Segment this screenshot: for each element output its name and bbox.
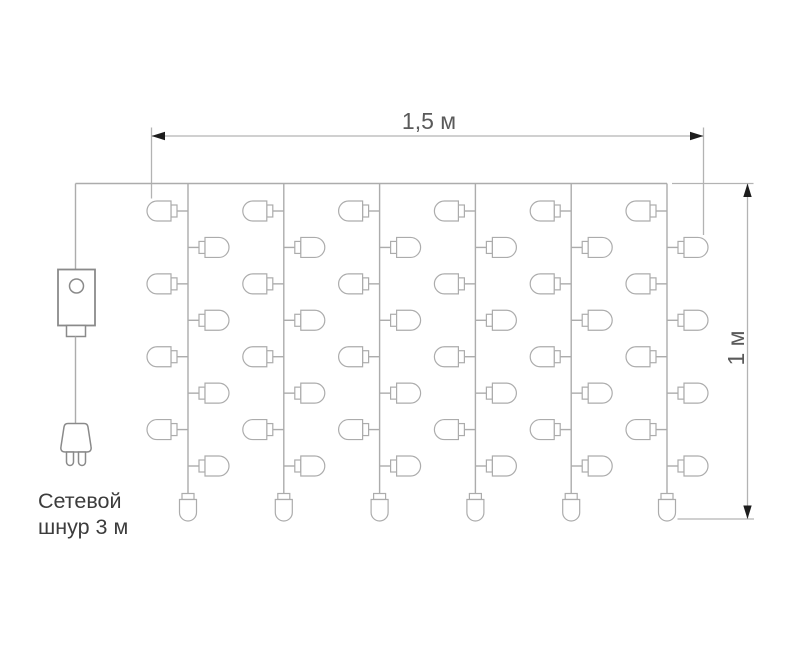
bulb-capsule — [626, 347, 650, 367]
bulb-capsule — [243, 274, 267, 294]
led-bulb-right — [571, 456, 612, 476]
bulb-socket — [363, 278, 369, 290]
led-bulb-end — [180, 494, 197, 522]
led-bulb-right — [284, 456, 325, 476]
bulb-capsule — [588, 310, 612, 330]
bulb-socket — [458, 424, 464, 436]
bulb-socket — [363, 205, 369, 217]
bulb-capsule — [147, 347, 171, 367]
bulb-capsule — [243, 420, 267, 440]
led-bulb-right — [667, 310, 708, 330]
bulb-capsule — [684, 237, 708, 257]
led-bulb-right — [475, 383, 516, 403]
bulb-socket — [650, 205, 656, 217]
bulb-capsule — [275, 500, 292, 522]
bulb-capsule — [397, 237, 421, 257]
bulb-capsule — [180, 500, 197, 522]
led-bulb-right — [475, 310, 516, 330]
arrowhead-down-icon — [743, 506, 751, 520]
strand — [434, 184, 516, 522]
bulb-capsule — [434, 274, 458, 294]
bulb-socket — [199, 460, 205, 472]
led-bulb-right — [475, 456, 516, 476]
led-bulb-left — [530, 347, 571, 367]
led-bulb-right — [188, 456, 229, 476]
bulb-capsule — [626, 201, 650, 221]
bulb-capsule — [339, 201, 363, 221]
curtain-garland-diagram: 1,5 м 1 м Сетевой ш — [0, 0, 794, 661]
bulb-socket — [458, 351, 464, 363]
bulb-capsule — [530, 201, 554, 221]
bulb-socket — [554, 278, 560, 290]
bulb-socket — [391, 241, 397, 253]
bulb-socket — [391, 387, 397, 399]
bulb-socket — [374, 494, 386, 500]
bulb-socket — [582, 387, 588, 399]
led-bulb-left — [434, 347, 475, 367]
bulb-socket — [582, 460, 588, 472]
bulb-socket — [678, 387, 684, 399]
bulb-socket — [295, 387, 301, 399]
bulb-capsule — [397, 310, 421, 330]
led-bulb-left — [626, 201, 667, 221]
bulb-capsule — [588, 237, 612, 257]
bulb-socket — [678, 314, 684, 326]
adapter-box-body — [58, 270, 95, 326]
led-bulb-right — [284, 383, 325, 403]
bulb-socket — [650, 278, 656, 290]
led-bulb-right — [571, 310, 612, 330]
bulb-capsule — [659, 500, 676, 522]
plug-prong-left — [67, 452, 74, 466]
led-bulb-left — [243, 274, 284, 294]
bulb-capsule — [492, 383, 516, 403]
led-bulb-right — [188, 237, 229, 257]
bulb-socket — [199, 387, 205, 399]
bulb-capsule — [243, 201, 267, 221]
diagram-canvas: 1,5 м 1 м Сетевой ш — [0, 0, 794, 661]
bulb-socket — [267, 424, 273, 436]
bulb-socket — [554, 205, 560, 217]
adapter-connector — [67, 326, 86, 337]
power-cord-assembly: Сетевой шнур 3 м — [38, 184, 128, 540]
plug-body — [61, 424, 91, 453]
bulb-socket — [363, 351, 369, 363]
led-bulb-left — [243, 347, 284, 367]
led-bulb-left — [339, 420, 380, 440]
led-bulb-end — [563, 494, 580, 522]
bulb-socket — [267, 205, 273, 217]
strands — [147, 184, 708, 522]
led-bulb-right — [188, 310, 229, 330]
plug-prong-right — [79, 452, 86, 466]
bulb-capsule — [684, 310, 708, 330]
bulb-capsule — [205, 383, 229, 403]
bulb-socket — [582, 241, 588, 253]
curtain-grid — [76, 184, 709, 522]
led-bulb-left — [626, 347, 667, 367]
bulb-capsule — [339, 420, 363, 440]
bulb-capsule — [397, 456, 421, 476]
led-bulb-left — [339, 274, 380, 294]
strand — [530, 184, 612, 522]
bulb-capsule — [301, 383, 325, 403]
bulb-capsule — [301, 310, 325, 330]
bulb-socket — [171, 278, 177, 290]
bulb-socket — [295, 314, 301, 326]
led-bulb-right — [571, 237, 612, 257]
bulb-capsule — [339, 347, 363, 367]
bulb-capsule — [467, 500, 484, 522]
led-bulb-left — [530, 274, 571, 294]
led-bulb-left — [434, 420, 475, 440]
led-bulb-right — [667, 383, 708, 403]
led-bulb-end — [467, 494, 484, 522]
bulb-socket — [486, 241, 492, 253]
bulb-capsule — [434, 347, 458, 367]
bulb-capsule — [434, 201, 458, 221]
strand — [339, 184, 421, 522]
bulb-socket — [650, 424, 656, 436]
led-bulb-left — [339, 201, 380, 221]
led-bulb-left — [626, 274, 667, 294]
bulb-socket — [661, 494, 673, 500]
bulb-capsule — [205, 456, 229, 476]
bulb-capsule — [147, 274, 171, 294]
bulb-capsule — [301, 456, 325, 476]
bulb-socket — [678, 460, 684, 472]
bulb-socket — [458, 278, 464, 290]
bulb-socket — [278, 494, 290, 500]
bulb-capsule — [563, 500, 580, 522]
led-bulb-left — [147, 274, 188, 294]
led-bulb-left — [243, 420, 284, 440]
arrowhead-right-icon — [690, 132, 704, 140]
bulb-socket — [554, 424, 560, 436]
bulb-capsule — [684, 383, 708, 403]
bulb-socket — [458, 205, 464, 217]
bulb-capsule — [530, 347, 554, 367]
adapter-box — [58, 270, 95, 337]
width-dimension: 1,5 м — [152, 108, 704, 235]
bulb-capsule — [530, 274, 554, 294]
led-bulb-right — [380, 456, 421, 476]
led-bulb-left — [147, 420, 188, 440]
bulb-socket — [295, 460, 301, 472]
bulb-socket — [678, 241, 684, 253]
led-bulb-right — [188, 383, 229, 403]
strand — [243, 184, 325, 522]
strand — [147, 184, 229, 522]
bulb-socket — [469, 494, 481, 500]
bulb-socket — [391, 314, 397, 326]
led-bulb-left — [626, 420, 667, 440]
led-bulb-left — [339, 347, 380, 367]
led-bulb-right — [380, 383, 421, 403]
led-bulb-left — [147, 201, 188, 221]
bulb-capsule — [492, 237, 516, 257]
bulb-capsule — [397, 383, 421, 403]
led-bulb-left — [530, 201, 571, 221]
power-cord-label-line2: шнур 3 м — [38, 515, 128, 539]
bulb-capsule — [530, 420, 554, 440]
arrowhead-up-icon — [743, 184, 751, 198]
led-bulb-left — [434, 201, 475, 221]
adapter-vent-hole-icon — [70, 279, 84, 293]
bulb-capsule — [205, 237, 229, 257]
led-bulb-end — [275, 494, 292, 522]
bulb-socket — [295, 241, 301, 253]
bulb-socket — [650, 351, 656, 363]
height-dimension-label: 1 м — [723, 331, 749, 366]
power-cord-label-line1: Сетевой — [38, 489, 121, 513]
bulb-capsule — [147, 420, 171, 440]
bulb-capsule — [684, 456, 708, 476]
bulb-socket — [182, 494, 194, 500]
bulb-socket — [486, 387, 492, 399]
width-dimension-label: 1,5 м — [402, 108, 456, 134]
bulb-socket — [554, 351, 560, 363]
bulb-capsule — [339, 274, 363, 294]
arrowhead-left-icon — [152, 132, 166, 140]
bulb-socket — [267, 278, 273, 290]
led-bulb-right — [284, 237, 325, 257]
led-bulb-right — [284, 310, 325, 330]
led-bulb-left — [434, 274, 475, 294]
bulb-socket — [565, 494, 577, 500]
bulb-capsule — [301, 237, 325, 257]
bulb-capsule — [626, 420, 650, 440]
led-bulb-end — [659, 494, 676, 522]
bulb-capsule — [588, 383, 612, 403]
led-bulb-left — [243, 201, 284, 221]
plug-icon — [61, 424, 91, 466]
bulb-socket — [486, 460, 492, 472]
bulb-capsule — [492, 456, 516, 476]
bulb-socket — [267, 351, 273, 363]
bulb-socket — [486, 314, 492, 326]
led-bulb-end — [371, 494, 388, 522]
bulb-socket — [199, 241, 205, 253]
bulb-capsule — [434, 420, 458, 440]
bulb-socket — [171, 205, 177, 217]
led-bulb-right — [667, 456, 708, 476]
bulb-socket — [199, 314, 205, 326]
bulb-socket — [391, 460, 397, 472]
led-bulb-right — [380, 310, 421, 330]
bulb-capsule — [492, 310, 516, 330]
bulb-capsule — [626, 274, 650, 294]
led-bulb-right — [571, 383, 612, 403]
bulb-socket — [582, 314, 588, 326]
led-bulb-left — [530, 420, 571, 440]
bulb-capsule — [147, 201, 171, 221]
led-bulb-left — [147, 347, 188, 367]
bulb-capsule — [205, 310, 229, 330]
led-bulb-right — [475, 237, 516, 257]
bulb-socket — [171, 351, 177, 363]
led-bulb-right — [380, 237, 421, 257]
led-bulb-right — [667, 237, 708, 257]
bulb-capsule — [243, 347, 267, 367]
bulb-capsule — [371, 500, 388, 522]
bulb-socket — [171, 424, 177, 436]
bulb-socket — [363, 424, 369, 436]
bulb-capsule — [588, 456, 612, 476]
strand — [626, 184, 708, 522]
